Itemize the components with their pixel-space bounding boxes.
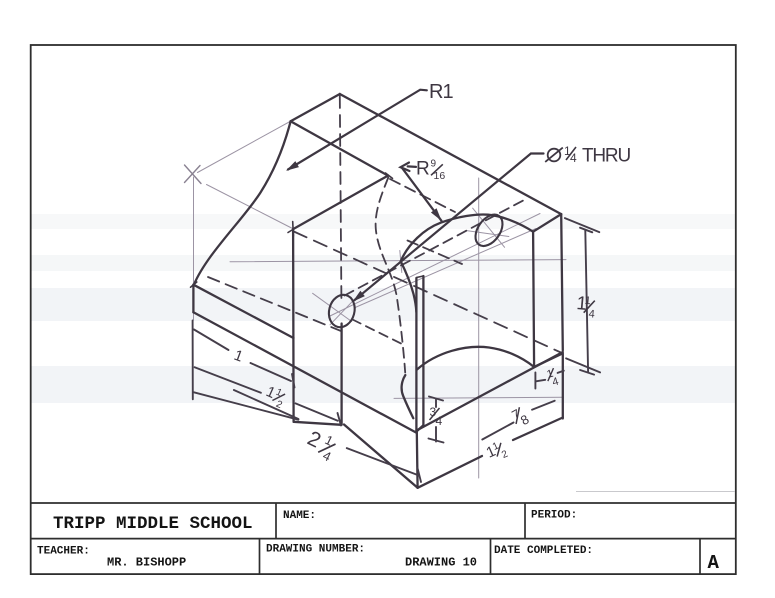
- svg-text:4: 4: [570, 151, 577, 165]
- svg-text:DATE COMPLETED:: DATE COMPLETED:: [494, 545, 593, 557]
- svg-text:NAME:: NAME:: [283, 510, 316, 522]
- svg-text:R: R: [416, 159, 430, 180]
- svg-text:4: 4: [436, 414, 443, 428]
- svg-text:DRAWING 10: DRAWING 10: [405, 556, 477, 570]
- svg-text:A: A: [708, 552, 720, 574]
- svg-text:TEACHER:: TEACHER:: [37, 546, 90, 558]
- svg-text:16: 16: [434, 170, 446, 182]
- svg-text:R1: R1: [429, 81, 453, 103]
- svg-text:4: 4: [588, 308, 595, 320]
- svg-text:THRU: THRU: [582, 146, 630, 167]
- svg-text:9: 9: [431, 159, 437, 170]
- svg-text:PERIOD:: PERIOD:: [531, 510, 577, 522]
- svg-text:MR. BISHOPP: MR. BISHOPP: [107, 556, 186, 570]
- svg-text:TRIPP MIDDLE SCHOOL: TRIPP MIDDLE SCHOOL: [53, 514, 253, 534]
- svg-text:DRAWING NUMBER:: DRAWING NUMBER:: [266, 544, 365, 556]
